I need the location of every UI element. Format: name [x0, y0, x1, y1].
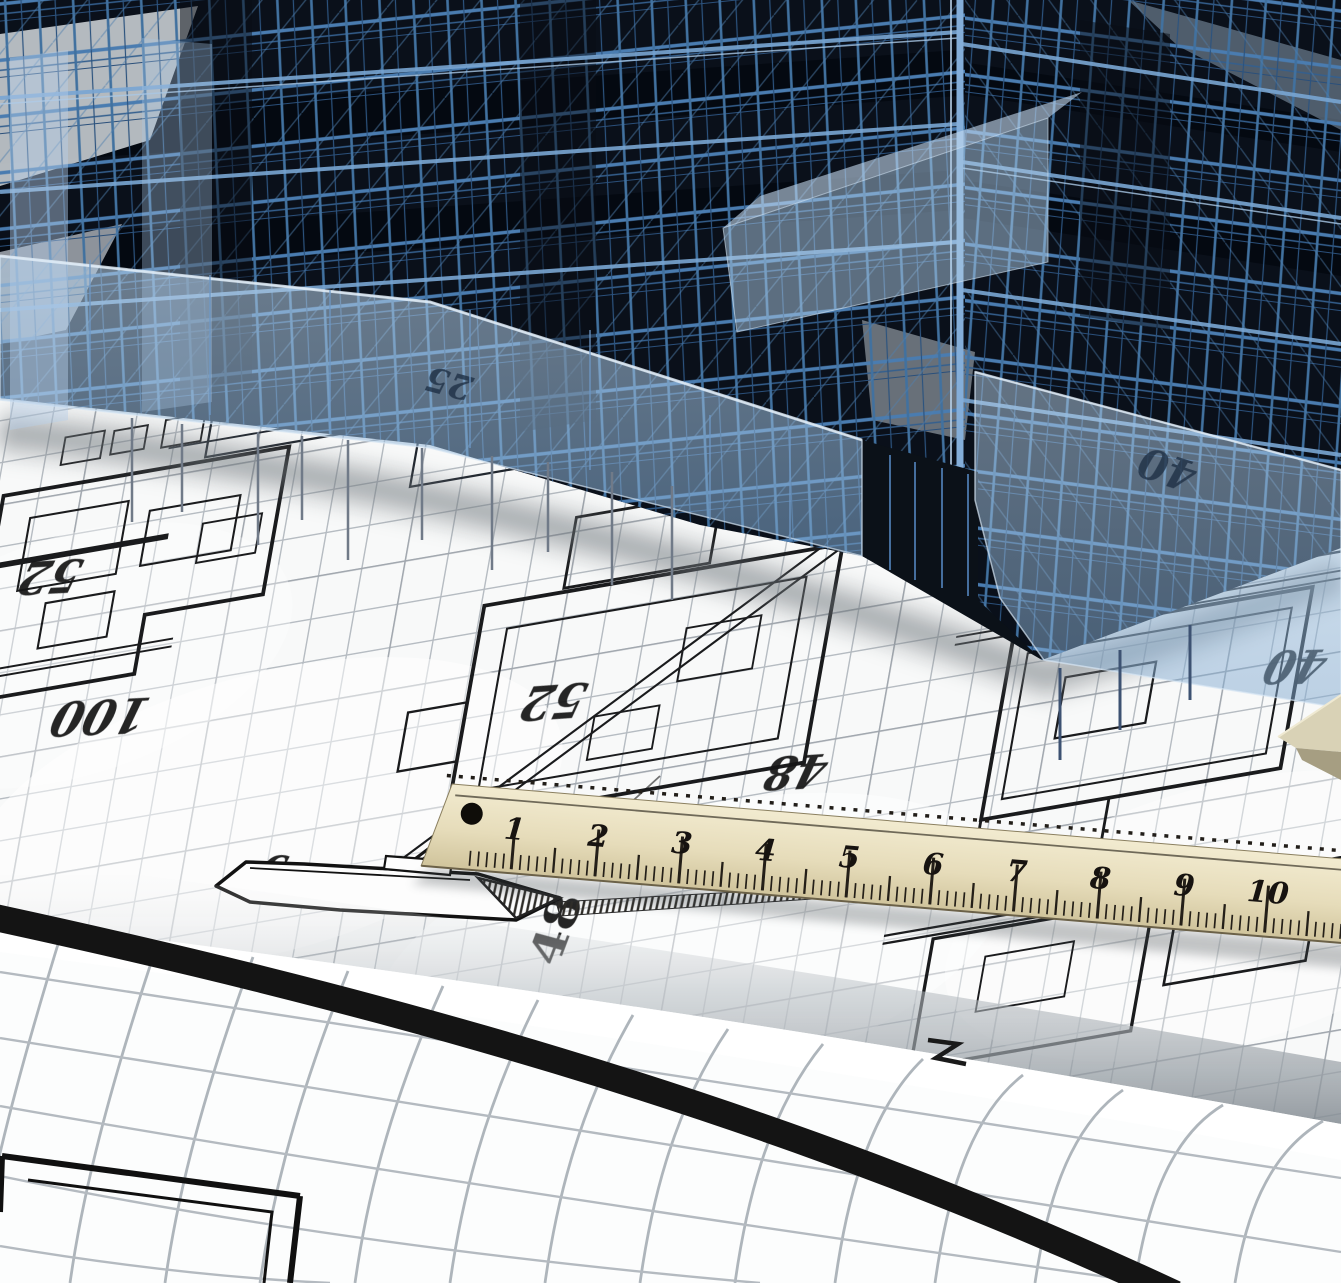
- glass-column: [10, 50, 68, 430]
- ruler-number-6: 6: [921, 847, 945, 884]
- dimension-label-left-100: 100: [44, 686, 156, 747]
- ruler-number-2: 2: [585, 819, 610, 856]
- ruler-number-10: 10: [1246, 874, 1291, 912]
- glass-column: [142, 38, 212, 412]
- scene-canvas: 52 100 52 48 40 5 48: [0, 0, 1341, 1283]
- ruler-number-8: 8: [1088, 861, 1113, 898]
- depth-stripe: [1080, 20, 1170, 330]
- ruler-number-1: 1: [503, 812, 527, 849]
- ruler-number-3: 3: [670, 826, 694, 863]
- blueprint-scene: 52 100 52 48 40 5 48: [0, 0, 1341, 1283]
- ruler-number-5: 5: [838, 840, 862, 877]
- ruler-number-7: 7: [1005, 854, 1029, 891]
- ruler-number-9: 9: [1172, 868, 1196, 905]
- ruler-number-4: 4: [754, 833, 778, 870]
